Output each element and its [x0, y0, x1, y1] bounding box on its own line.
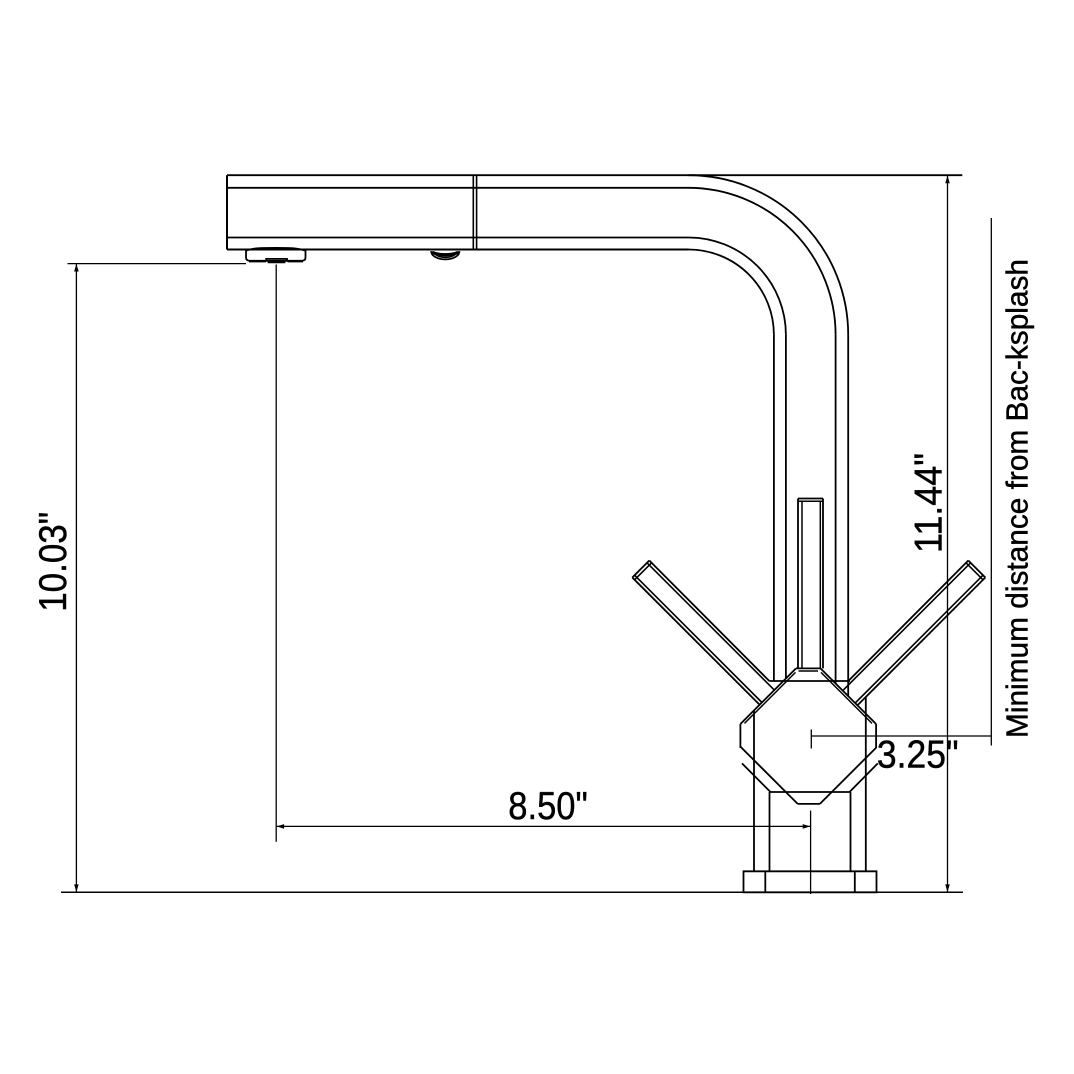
svg-text:11.44": 11.44"	[908, 453, 951, 553]
svg-text:3.25": 3.25"	[877, 734, 959, 777]
svg-text:8.50": 8.50"	[508, 785, 587, 828]
svg-text:Minimum distance from Bac-kspl: Minimum distance from Bac-ksplash	[999, 259, 1034, 738]
svg-text:10.03": 10.03"	[32, 512, 75, 612]
